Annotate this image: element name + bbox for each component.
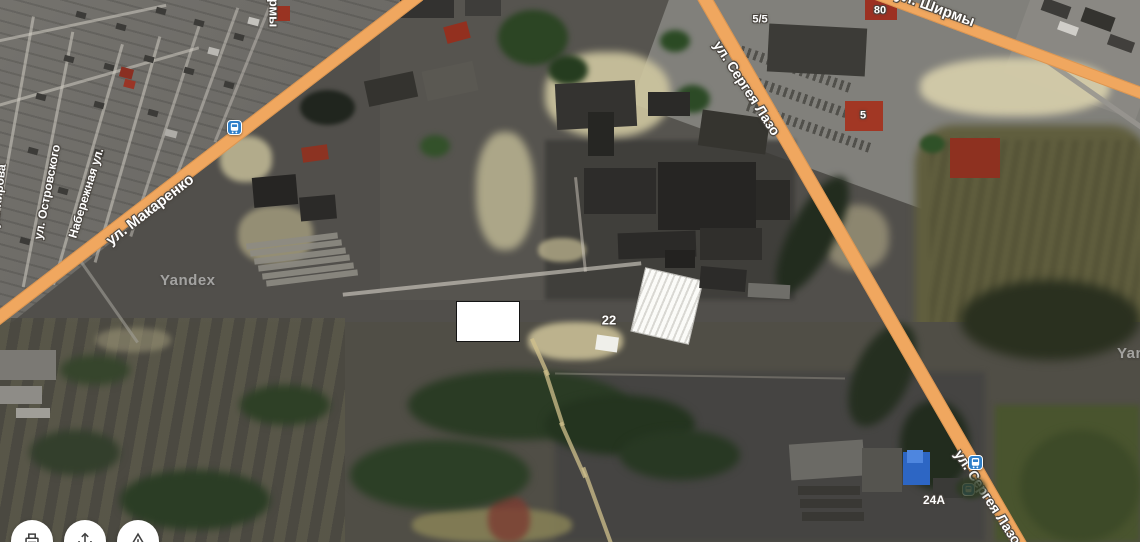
building (789, 439, 865, 480)
building (756, 180, 790, 220)
house-number-80: 80 (874, 6, 886, 17)
building (16, 408, 50, 418)
building (0, 350, 56, 380)
building (648, 92, 690, 116)
street-label-rmy-partial: рмы (268, 0, 281, 27)
building (950, 138, 1000, 178)
sand-patch (476, 132, 534, 250)
printer-icon (21, 530, 43, 542)
building (588, 112, 614, 156)
building (907, 450, 923, 463)
building (465, 0, 501, 16)
warning-triangle-icon (127, 530, 149, 542)
house-number-24a: 24А (923, 494, 945, 506)
house-number-22: 22 (602, 314, 616, 327)
house-number-5-5: 5/5 (752, 15, 767, 26)
building (299, 194, 337, 221)
tree-patch (1020, 430, 1140, 542)
tree-patch (660, 30, 690, 52)
provider-watermark: Yandex (160, 272, 216, 289)
building (802, 512, 864, 521)
tree-patch (920, 135, 945, 153)
building (699, 266, 747, 292)
building (800, 499, 862, 508)
map-canvas[interactable]: ул. Макаренко ул. Сергея Лазо ул. Сергея… (0, 0, 1140, 542)
share-icon (74, 530, 96, 542)
building (862, 448, 902, 492)
building (767, 23, 867, 76)
building (252, 174, 298, 208)
tree-patch (548, 55, 588, 85)
building (700, 228, 762, 260)
building (798, 486, 860, 495)
bus-glyph (970, 457, 981, 469)
bus-stop-icon[interactable] (227, 120, 242, 135)
tree-patch (350, 440, 530, 510)
tree-patch (956, 477, 986, 499)
building (0, 386, 42, 404)
tree-patch (960, 280, 1140, 360)
building (595, 335, 619, 353)
building (748, 283, 791, 299)
pond (300, 90, 355, 125)
blank-building-overlay (456, 301, 520, 342)
provider-watermark: Yandex (1117, 345, 1140, 362)
building (665, 250, 695, 268)
bus-stop-icon[interactable] (968, 455, 983, 470)
tree-patch (620, 430, 740, 480)
building (658, 162, 756, 230)
tree-patch (30, 430, 120, 475)
house-number-5: 5 (860, 111, 866, 122)
building (584, 168, 656, 214)
tree-patch (420, 135, 450, 157)
bus-glyph (229, 122, 240, 134)
tree-patch (60, 355, 130, 385)
building (301, 144, 329, 162)
sand-patch (538, 238, 586, 262)
tree-patch (240, 385, 330, 425)
